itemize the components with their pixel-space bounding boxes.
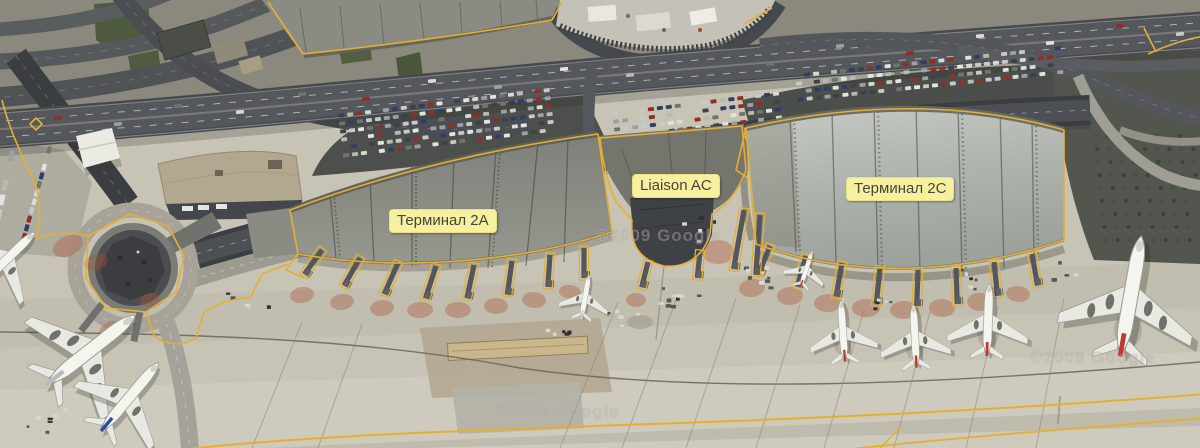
- vehicle: [836, 44, 844, 48]
- map-label-terminal-2a[interactable]: Терминал 2A: [389, 209, 497, 233]
- map-label-liaison-ac[interactable]: Liaison AC: [632, 174, 720, 198]
- vehicle: [494, 85, 502, 89]
- vehicle: [114, 122, 122, 126]
- vehicle: [174, 104, 182, 108]
- vehicle: [54, 116, 62, 120]
- vehicle: [1176, 32, 1184, 36]
- satellite-imagery: [0, 0, 1200, 448]
- vehicle: [976, 34, 984, 38]
- vehicle: [428, 79, 436, 83]
- vehicle: [236, 110, 244, 114]
- map-label-terminal-2c[interactable]: Терминал 2C: [846, 177, 954, 201]
- vehicle: [906, 51, 914, 55]
- vehicle: [1046, 41, 1054, 45]
- vehicle: [298, 92, 306, 96]
- vehicle: [626, 73, 634, 77]
- vehicle: [362, 97, 370, 101]
- vehicle: [1116, 24, 1124, 28]
- vehicle: [766, 62, 774, 66]
- annex-building: [158, 151, 302, 209]
- vehicle: [560, 67, 568, 71]
- satellite-map-view: Терминал 2A Liaison AC Терминал 2C ©2009…: [0, 0, 1200, 448]
